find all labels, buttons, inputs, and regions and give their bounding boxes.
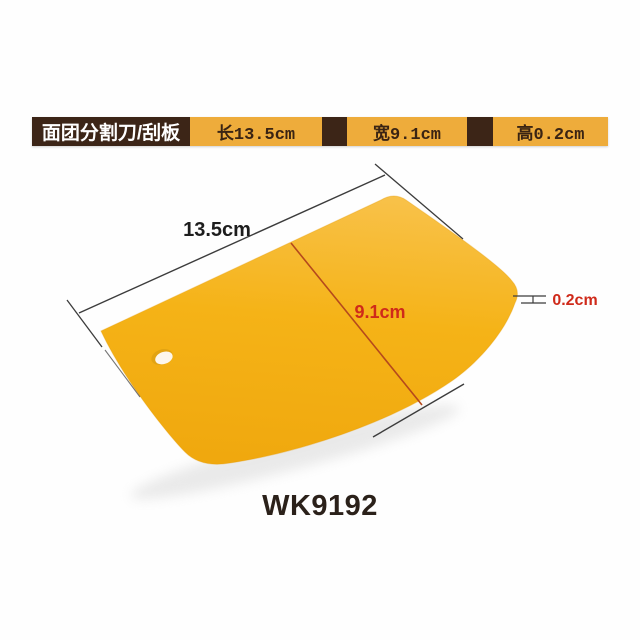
height-label: 0.2cm <box>552 292 597 309</box>
length-tick-left <box>67 300 102 347</box>
length-label: 13.5cm <box>183 219 251 241</box>
product-code: WK9192 <box>0 490 640 523</box>
scraper-body <box>101 196 517 464</box>
width-label: 9.1cm <box>354 302 405 322</box>
thickness-indicator <box>513 296 546 303</box>
product-illustration: 13.5cm 9.1cm 0.2cm <box>0 0 640 640</box>
